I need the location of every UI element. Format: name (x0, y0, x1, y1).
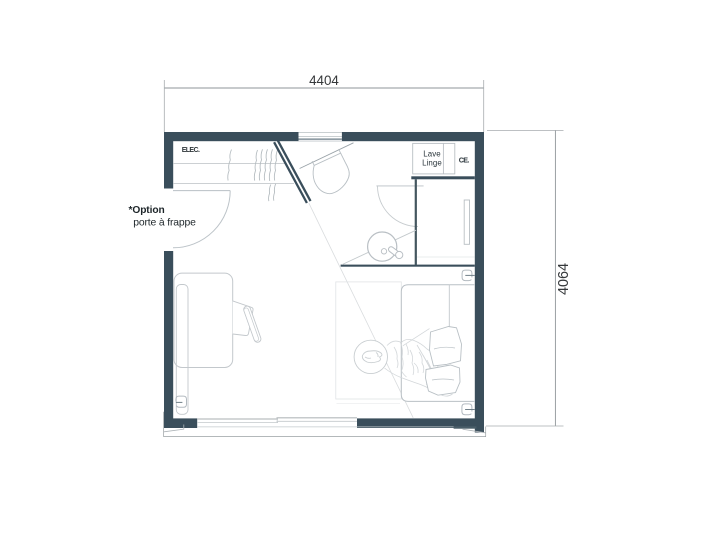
svg-text:4404: 4404 (309, 73, 339, 88)
svg-text:Lave: Lave (423, 149, 441, 158)
svg-text:porte à frappe: porte à frappe (133, 218, 196, 229)
svg-text:*Option: *Option (129, 205, 165, 216)
svg-text:4064: 4064 (556, 263, 572, 295)
svg-text:Linge: Linge (422, 158, 442, 167)
svg-text:CE.: CE. (459, 156, 470, 165)
svg-text:ELEC.: ELEC. (182, 147, 200, 154)
